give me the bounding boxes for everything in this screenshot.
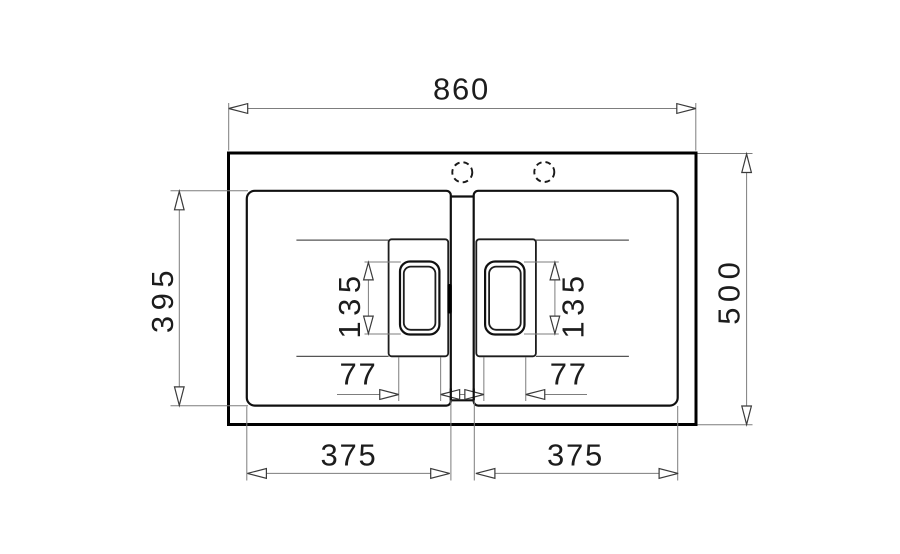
svg-text:375: 375 bbox=[547, 437, 604, 472]
svg-text:395: 395 bbox=[145, 265, 180, 333]
svg-text:77: 77 bbox=[550, 356, 588, 391]
svg-text:77: 77 bbox=[339, 356, 377, 391]
svg-text:500: 500 bbox=[712, 257, 747, 325]
svg-text:135: 135 bbox=[332, 270, 367, 338]
svg-text:860: 860 bbox=[433, 72, 490, 107]
svg-text:375: 375 bbox=[320, 437, 377, 472]
svg-text:135: 135 bbox=[556, 270, 591, 338]
